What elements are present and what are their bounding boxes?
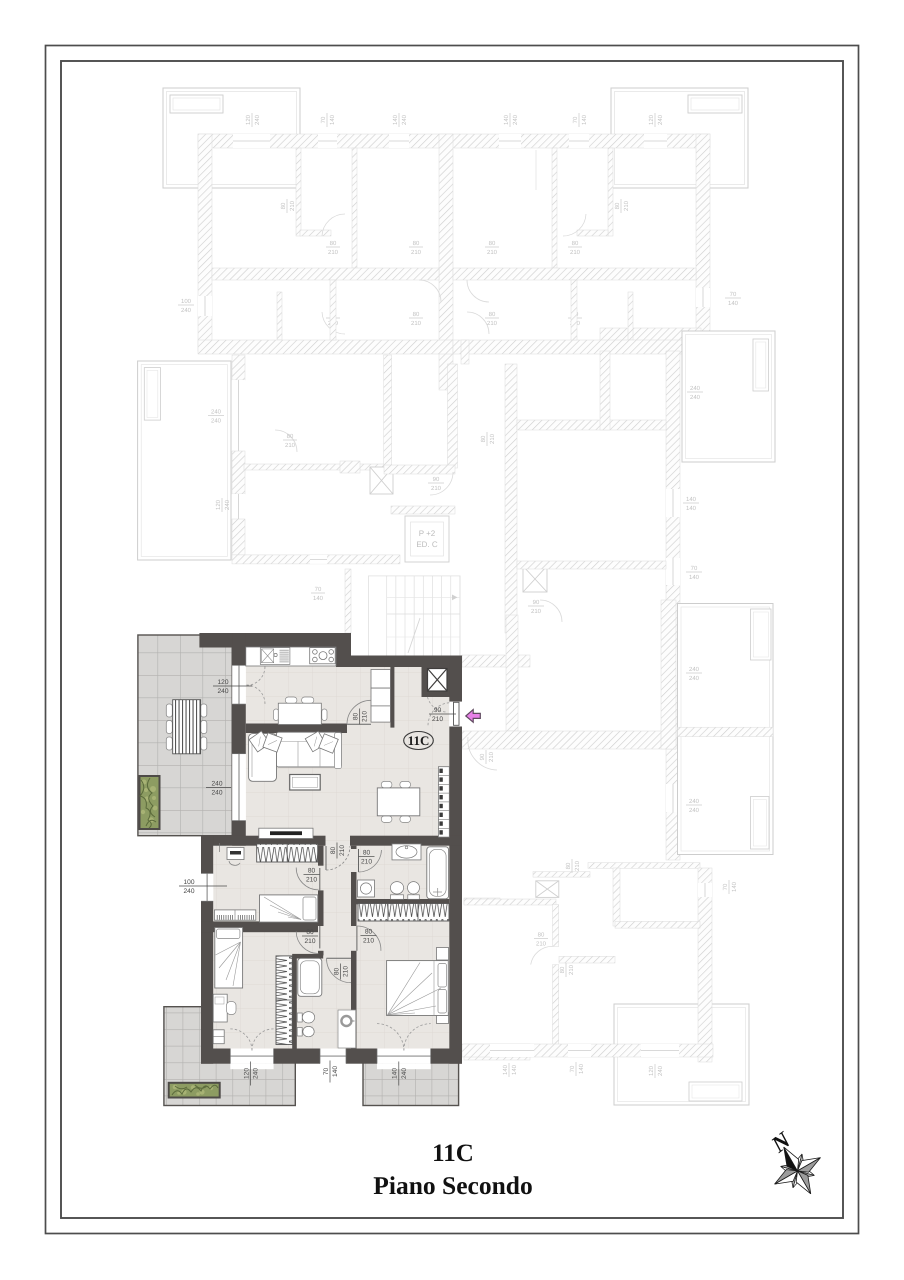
svg-text:210: 210 [487, 320, 498, 327]
svg-text:210: 210 [536, 941, 547, 948]
svg-text:70: 70 [569, 1065, 576, 1072]
svg-text:240: 240 [657, 1065, 664, 1076]
svg-text:210: 210 [362, 711, 369, 722]
svg-text:80: 80 [280, 202, 287, 209]
svg-text:140: 140 [728, 300, 739, 307]
svg-text:90: 90 [479, 753, 486, 760]
svg-text:120: 120 [217, 679, 228, 686]
svg-text:70: 70 [691, 565, 698, 572]
svg-text:140: 140 [313, 595, 324, 602]
svg-text:80: 80 [352, 713, 359, 721]
svg-text:240: 240 [689, 807, 700, 814]
svg-text:240: 240 [689, 675, 700, 682]
svg-text:140: 140 [581, 114, 588, 125]
svg-text:210: 210 [285, 442, 296, 449]
svg-text:90: 90 [433, 476, 440, 483]
svg-text:80: 80 [614, 202, 621, 209]
svg-text:210: 210 [568, 964, 575, 975]
svg-text:240: 240 [689, 798, 700, 805]
svg-text:210: 210 [339, 845, 346, 856]
svg-text:120: 120 [648, 114, 655, 125]
svg-text:80: 80 [363, 849, 371, 856]
svg-text:210: 210 [531, 608, 542, 615]
svg-text:80: 80 [480, 435, 487, 442]
svg-text:80: 80 [330, 240, 337, 247]
svg-text:210: 210 [328, 249, 339, 256]
svg-text:240: 240 [211, 790, 222, 797]
svg-text:80: 80 [306, 929, 314, 936]
svg-text:140: 140 [392, 1068, 399, 1079]
svg-text:240: 240 [254, 114, 261, 125]
svg-text:210: 210 [488, 751, 495, 762]
svg-text:210: 210 [623, 200, 630, 211]
svg-text:P +2: P +2 [419, 529, 436, 538]
svg-text:240: 240 [657, 114, 664, 125]
svg-text:210: 210 [489, 433, 496, 444]
svg-text:240: 240 [224, 499, 231, 510]
svg-text:100: 100 [181, 298, 192, 305]
svg-text:Piano Secondo: Piano Secondo [373, 1171, 532, 1200]
svg-text:240: 240 [690, 385, 701, 392]
svg-text:210: 210 [306, 877, 317, 884]
svg-text:210: 210 [411, 320, 422, 327]
svg-text:240: 240 [217, 688, 228, 695]
svg-text:120: 120 [215, 499, 222, 510]
svg-text:80: 80 [330, 847, 337, 855]
svg-text:80: 80 [559, 966, 566, 973]
svg-text:210: 210 [487, 249, 498, 256]
svg-text:11C: 11C [432, 1140, 474, 1167]
svg-text:ED. C: ED. C [416, 540, 438, 549]
svg-text:240: 240 [689, 666, 700, 673]
svg-text:140: 140 [503, 114, 510, 125]
svg-text:210: 210 [361, 859, 372, 866]
svg-text:90: 90 [533, 599, 540, 606]
svg-text:70: 70 [572, 116, 579, 123]
svg-text:140: 140 [511, 1064, 518, 1075]
svg-text:210: 210 [432, 716, 443, 723]
svg-text:80: 80 [489, 311, 496, 318]
svg-text:240: 240 [512, 114, 519, 125]
svg-text:120: 120 [243, 1068, 250, 1079]
svg-text:140: 140 [731, 881, 738, 892]
svg-text:80: 80 [413, 240, 420, 247]
svg-text:140: 140 [392, 114, 399, 125]
svg-text:240: 240 [690, 394, 701, 401]
svg-text:11C: 11C [408, 733, 430, 748]
svg-text:80: 80 [565, 862, 572, 869]
svg-text:100: 100 [183, 879, 194, 886]
svg-text:240: 240 [181, 307, 192, 314]
svg-text:140: 140 [578, 1063, 585, 1074]
svg-text:140: 140 [332, 1066, 339, 1077]
svg-text:140: 140 [689, 574, 700, 581]
svg-text:70: 70 [323, 1068, 330, 1076]
svg-text:210: 210 [304, 938, 315, 945]
svg-text:120: 120 [648, 1065, 655, 1076]
svg-text:140: 140 [686, 496, 697, 503]
svg-text:240: 240 [183, 888, 194, 895]
svg-text:80: 80 [333, 968, 340, 976]
svg-text:70: 70 [722, 883, 729, 890]
svg-text:240: 240 [211, 780, 222, 787]
svg-text:140: 140 [329, 114, 336, 125]
svg-text:80: 80 [489, 240, 496, 247]
svg-text:80: 80 [308, 867, 316, 874]
svg-text:210: 210 [289, 200, 296, 211]
svg-text:70: 70 [730, 291, 737, 298]
svg-text:80: 80 [538, 931, 545, 938]
svg-text:240: 240 [401, 1068, 408, 1079]
svg-text:240: 240 [401, 114, 408, 125]
svg-text:240: 240 [253, 1068, 260, 1079]
svg-text:210: 210 [431, 485, 442, 492]
svg-text:210: 210 [574, 860, 581, 871]
svg-text:120: 120 [245, 114, 252, 125]
svg-text:80: 80 [413, 311, 420, 318]
svg-text:210: 210 [411, 249, 422, 256]
svg-text:70: 70 [315, 586, 322, 593]
svg-text:240: 240 [211, 408, 222, 415]
svg-text:70: 70 [320, 116, 327, 123]
svg-text:210: 210 [343, 966, 350, 977]
svg-text:80: 80 [365, 928, 373, 935]
svg-text:80: 80 [572, 240, 579, 247]
svg-text:210: 210 [570, 249, 581, 256]
svg-text:140: 140 [686, 505, 697, 512]
svg-text:140: 140 [502, 1064, 509, 1075]
svg-text:80: 80 [287, 433, 294, 440]
svg-text:90: 90 [434, 707, 442, 714]
svg-text:210: 210 [363, 938, 374, 945]
svg-text:240: 240 [211, 418, 222, 425]
